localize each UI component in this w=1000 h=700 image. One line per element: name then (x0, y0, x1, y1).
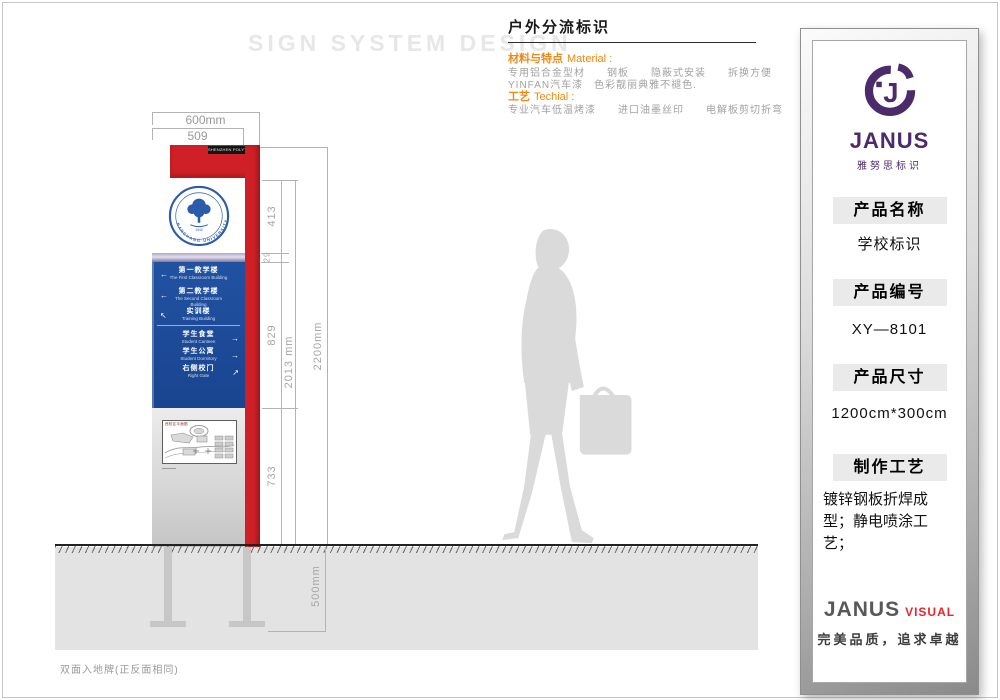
emblem-year: 1940 (195, 228, 203, 232)
foundation-post (164, 547, 172, 623)
map-area: 西校区平面图 (152, 408, 245, 547)
directory-row: ← 第一教学楼The First Classroom Building (152, 267, 245, 285)
brand-block: J JANUS 雅努思标识 (813, 57, 966, 172)
directory-en: Right Gate (167, 373, 231, 378)
directory-cn: 右侧校门 (167, 365, 231, 373)
dim-tick (260, 147, 327, 148)
product-size-bar: 产品尺寸 (833, 364, 947, 391)
ground-soil (55, 547, 758, 650)
directory-en: Student Dormitory (167, 356, 231, 361)
footer-brand-suffix: VISUAL (905, 605, 955, 619)
dim-tick (262, 180, 298, 181)
university-logo-area: NANCHANG UNIVERSITY 1940 (152, 178, 245, 253)
directory-divider (157, 325, 240, 326)
product-code-bar: 产品编号 (833, 279, 947, 306)
map-caption-mark (162, 468, 176, 469)
dim-label-divider-height: 29 (263, 252, 272, 263)
directory-row: 学生公寓Student Dormitory → (152, 348, 245, 366)
directory-en: Training Building (167, 316, 231, 321)
panel-divider-strip (152, 253, 245, 262)
dim-label-logo-height: 413 (266, 205, 278, 226)
arrow-up-left-icon: ↖ (160, 312, 167, 320)
dim-tick (262, 408, 298, 409)
dim-tick (243, 128, 244, 146)
directory-en: Student Canteen (167, 339, 231, 344)
dim-label-directory-height: 829 (266, 324, 278, 345)
foundation-foot (229, 621, 265, 627)
arrow-left-icon: ← (160, 292, 168, 300)
janus-logo-icon: J (858, 57, 922, 121)
tech-line-1: 专业汽车低温烤漆 进口油墨丝印 电解板剪切折弯 (508, 101, 783, 116)
product-code-value: XY—8101 (813, 321, 966, 338)
footer-brand: JANUS VISUAL (813, 598, 966, 622)
foundation-foot (150, 621, 186, 627)
directory-cn: 第一教学楼 (167, 267, 231, 275)
directory-cn: 实训楼 (167, 308, 231, 316)
dim-line-panel-height (295, 180, 296, 545)
human-silhouette (458, 226, 653, 554)
dim-label-panel-height: 2013 mm (283, 336, 295, 389)
dim-label-panel-width: 509 (152, 129, 243, 143)
dim-line-underground (325, 547, 326, 632)
directory-row: 右侧校门Right Gate ↗ (152, 365, 245, 383)
bottom-note: 双面入地牌(正反面相同) (60, 661, 179, 676)
dim-line-segments (281, 180, 282, 545)
campus-map: 西校区平面图 (162, 420, 237, 464)
svg-text:J: J (883, 77, 898, 108)
arrow-up-right-icon: ↗ (232, 369, 239, 377)
foundation-post (243, 547, 251, 623)
university-emblem-icon: NANCHANG UNIVERSITY 1940 (168, 185, 230, 247)
directory-row: 学生食堂Student Canteen → (152, 331, 245, 349)
directory-en: The First Classroom Building (167, 275, 231, 280)
directory-cn: 第二教学楼 (167, 288, 231, 296)
info-panel: J JANUS 雅努思标识 产品名称 学校标识 产品编号 XY—8101 产品尺… (812, 40, 967, 683)
footer-tagline: 完美品质，追求卓越 (813, 629, 966, 648)
dim-line-total-height (327, 147, 328, 545)
brand-name: JANUS (813, 128, 966, 154)
directory-cn: 学生食堂 (167, 331, 231, 339)
dim-label-total-height: 2200mm (312, 322, 324, 371)
brand-name-cn: 雅努思标识 (813, 157, 966, 172)
dim-label-underground-depth: 500mm (310, 565, 322, 607)
craft-bar: 制作工艺 (833, 454, 947, 481)
campus-map-drawing (163, 421, 236, 463)
map-title: 西校区平面图 (165, 422, 188, 427)
directory-row: ← 第二教学楼The Second Classroom Building (152, 288, 245, 306)
dim-label-map-height: 733 (266, 465, 278, 486)
directory-cn: 学生公寓 (167, 348, 231, 356)
footer-brand-name: JANUS (824, 598, 900, 622)
arrow-right-icon: → (231, 352, 239, 360)
design-sheet: SIGN SYSTEM DESIGN 户外分流标识 材料与特点Material … (0, 0, 1000, 700)
dim-tick (259, 112, 260, 146)
title-underline (508, 42, 756, 43)
product-size-value: 1200cm*300cm (813, 405, 966, 422)
spec-title: 户外分流标识 (508, 16, 610, 37)
arrow-left-icon: ← (160, 271, 168, 279)
craft-value: 镀锌钢板折焊成型；静电喷涂工艺； (823, 489, 935, 554)
directory-panel: ← 第一教学楼The First Classroom Building ← 第二… (152, 262, 245, 408)
sign-panel: NANCHANG UNIVERSITY 1940 ← 第一教学楼The Firs… (152, 178, 245, 547)
dim-label-total-width: 600mm (152, 113, 259, 127)
product-name-bar: 产品名称 (833, 197, 947, 224)
sign-pole (245, 145, 260, 547)
arrow-right-icon: → (231, 335, 239, 343)
directory-en: The Second Classroom Building (167, 296, 231, 306)
directory-row: ↖ 实训楼Training Building (152, 308, 245, 326)
product-name-value: 学校标识 (813, 233, 966, 254)
dim-tick (268, 631, 326, 632)
info-panel-frame: J JANUS 雅努思标识 产品名称 学校标识 产品编号 XY—8101 产品尺… (800, 28, 979, 695)
